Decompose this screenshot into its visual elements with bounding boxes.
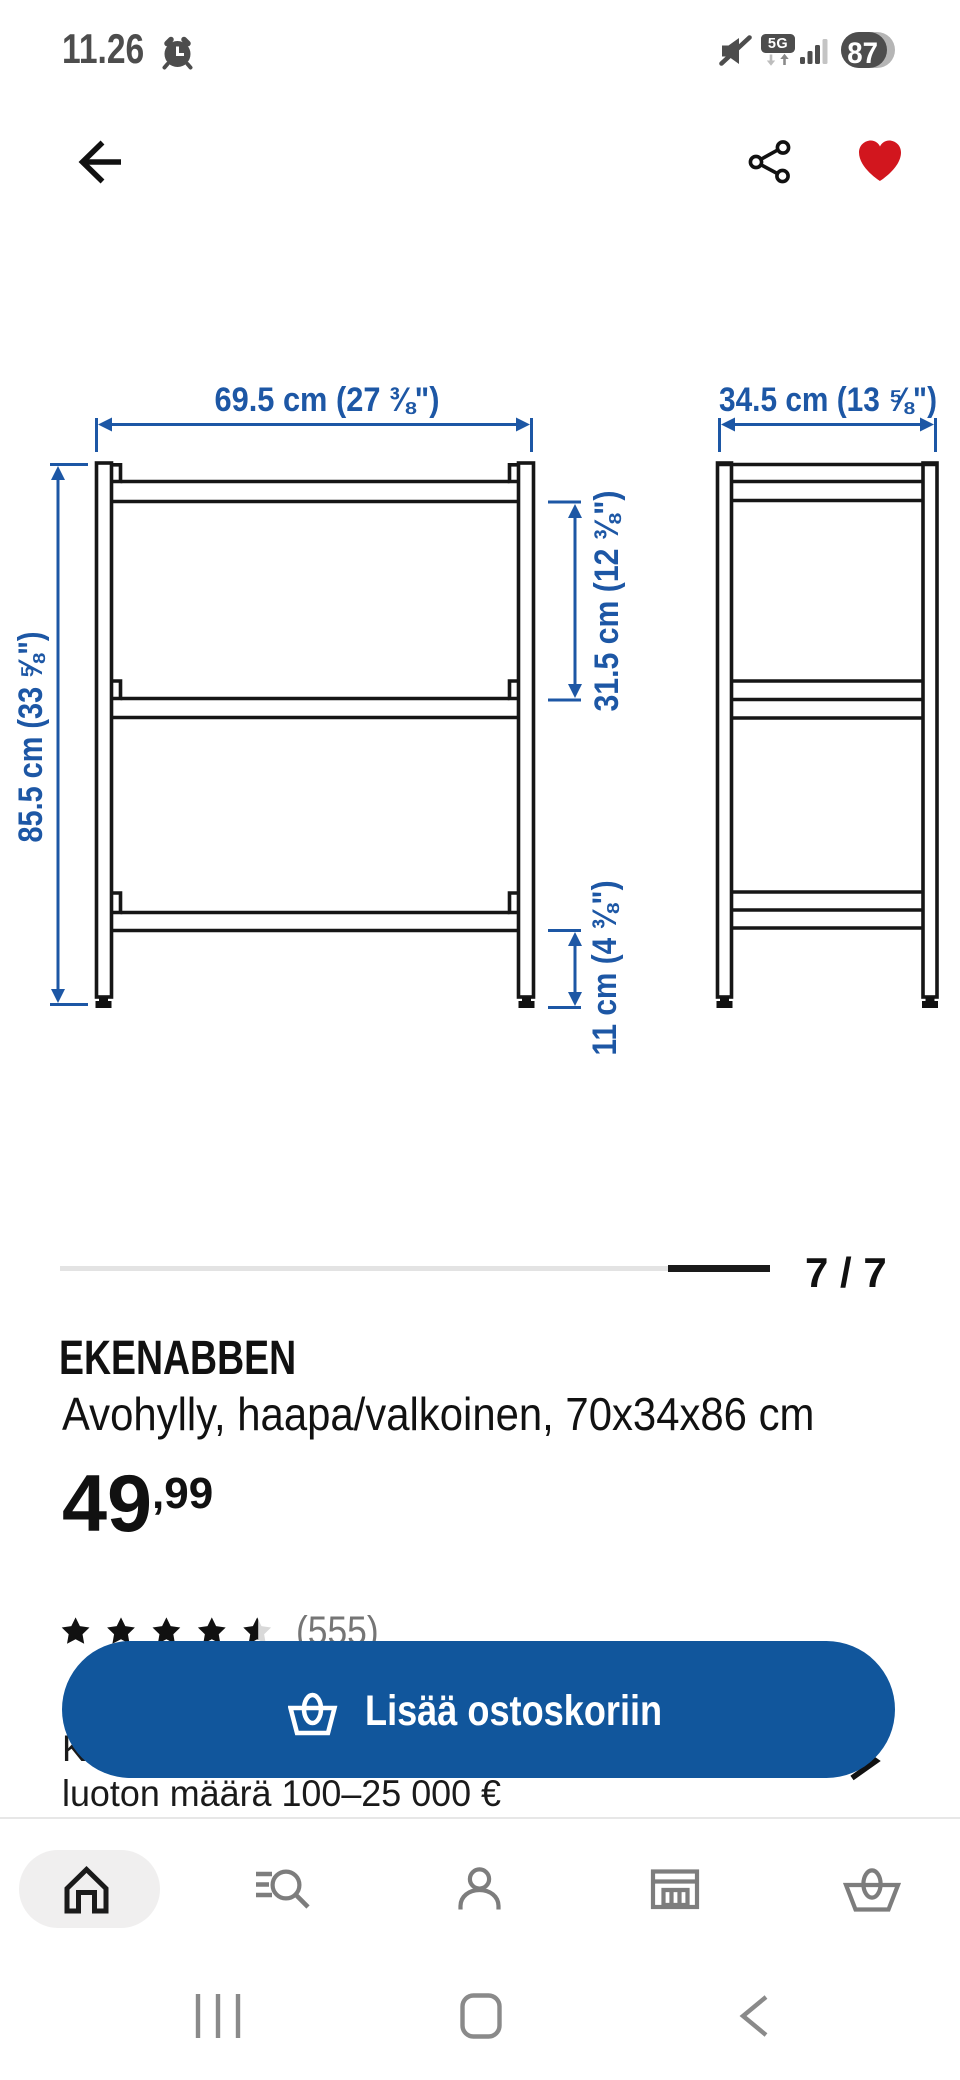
svg-text:69.5 cm (27 ⅜"): 69.5 cm (27 ⅜") <box>215 381 440 419</box>
svg-text:34.5 cm (13 ⅝"): 34.5 cm (13 ⅝") <box>719 381 937 419</box>
svg-text:85.5 cm (33 ⅝"): 85.5 cm (33 ⅝") <box>12 632 50 843</box>
svg-text:11 cm (4 ⅜"): 11 cm (4 ⅜") <box>586 881 624 1056</box>
svg-text:31.5 cm (12 ⅜"): 31.5 cm (12 ⅜") <box>588 491 626 712</box>
